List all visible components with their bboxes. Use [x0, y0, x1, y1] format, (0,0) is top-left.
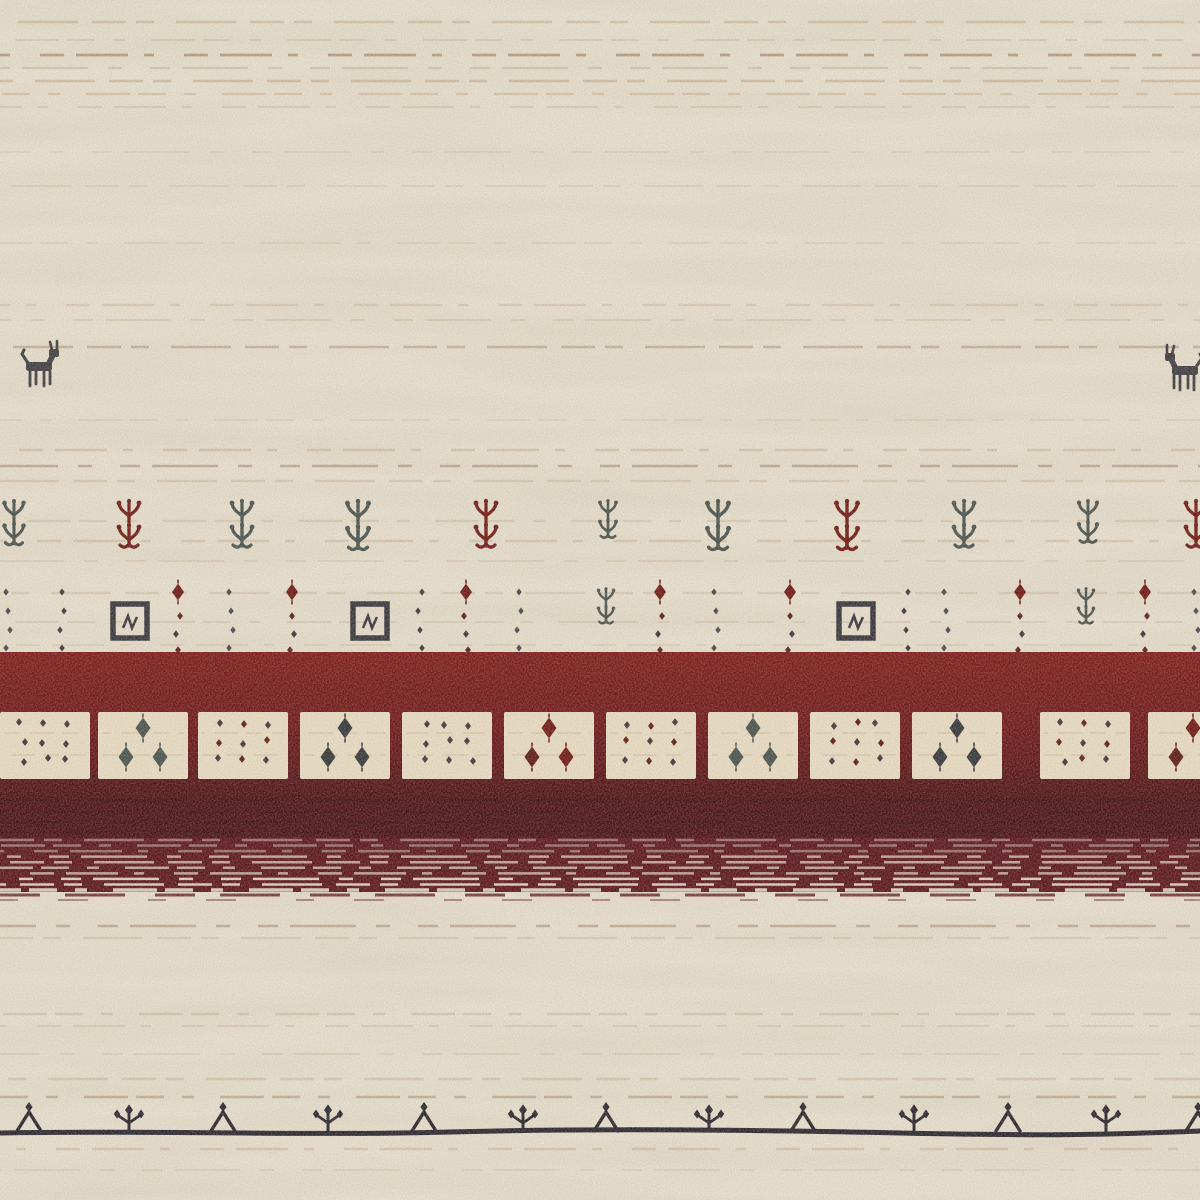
- rug-canvas: [0, 0, 1200, 1200]
- wool-grain-light: [0, 0, 1200, 1200]
- rug-photo: [0, 0, 1200, 1200]
